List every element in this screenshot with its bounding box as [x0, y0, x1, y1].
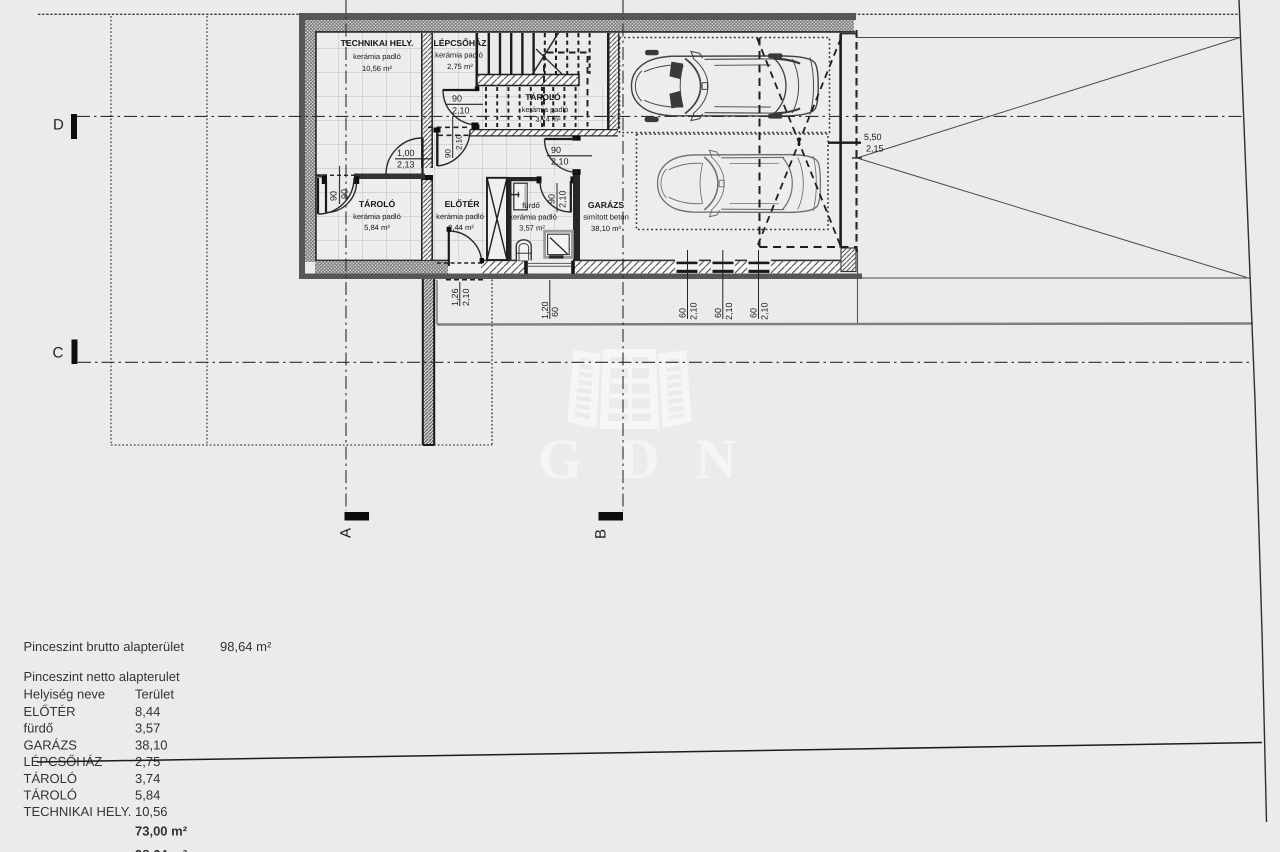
- svg-text:3,57: 3,57: [135, 721, 160, 736]
- svg-text:Terület: Terület: [135, 687, 174, 702]
- svg-text:fürdő: fürdő: [522, 201, 540, 210]
- svg-text:98,64 m²: 98,64 m²: [135, 847, 188, 852]
- svg-text:2,75: 2,75: [135, 754, 160, 769]
- svg-text:5,84: 5,84: [135, 788, 160, 803]
- svg-text:GARÁZS: GARÁZS: [588, 200, 625, 210]
- svg-text:73,00 m²: 73,00 m²: [135, 824, 188, 839]
- svg-text:90: 90: [329, 191, 339, 201]
- svg-text:kerámia padló: kerámia padló: [509, 213, 557, 222]
- svg-text:8,44 m²: 8,44 m²: [448, 223, 474, 232]
- svg-text:D: D: [53, 117, 64, 134]
- svg-text:10,56 m²: 10,56 m²: [362, 64, 392, 73]
- svg-text:fürdő: fürdő: [24, 721, 54, 736]
- svg-text:98,64 m²: 98,64 m²: [220, 639, 272, 654]
- svg-text:60: 60: [749, 308, 759, 318]
- svg-text:2,10: 2,10: [558, 190, 568, 208]
- svg-text:90: 90: [444, 149, 453, 158]
- svg-text:B: B: [593, 529, 610, 539]
- svg-text:38,10 m²: 38,10 m²: [591, 224, 621, 233]
- svg-text:2,75 m²: 2,75 m²: [447, 62, 473, 71]
- svg-text:90: 90: [452, 94, 462, 104]
- svg-text:ELŐTÉR: ELŐTÉR: [445, 199, 481, 209]
- svg-text:1,20: 1,20: [540, 301, 550, 319]
- svg-text:TÁROLÓ: TÁROLÓ: [525, 92, 561, 102]
- svg-text:2,10: 2,10: [689, 302, 699, 320]
- svg-text:5,84 m²: 5,84 m²: [364, 223, 390, 232]
- svg-text:ELŐTÉR: ELŐTÉR: [24, 704, 76, 719]
- svg-text:Helyiség neve: Helyiség neve: [24, 687, 106, 702]
- svg-text:1,00: 1,00: [397, 148, 415, 158]
- svg-text:GDN: GDN: [538, 428, 773, 491]
- svg-text:2,10: 2,10: [452, 106, 470, 116]
- svg-text:8,44: 8,44: [135, 704, 160, 719]
- svg-text:2,10: 2,10: [461, 288, 471, 306]
- svg-text:2,10: 2,10: [760, 302, 770, 320]
- svg-text:2,10: 2,10: [551, 157, 569, 167]
- svg-text:3,57 m²: 3,57 m²: [519, 224, 545, 233]
- svg-text:simított beton: simított beton: [583, 213, 629, 222]
- svg-text:90: 90: [340, 189, 350, 199]
- svg-text:C: C: [53, 345, 64, 362]
- svg-text:kerámia padló: kerámia padló: [435, 51, 483, 60]
- svg-text:TÁROLÓ: TÁROLÓ: [359, 199, 396, 209]
- svg-text:TECHNIKAI HELY.: TECHNIKAI HELY.: [24, 804, 132, 819]
- svg-text:TECHNIKAI HELY.: TECHNIKAI HELY.: [341, 38, 414, 48]
- svg-text:90: 90: [547, 194, 557, 204]
- svg-text:GARÁZS: GARÁZS: [24, 737, 78, 752]
- svg-text:2,13: 2,13: [397, 160, 415, 170]
- svg-text:60: 60: [550, 307, 560, 317]
- svg-text:60: 60: [678, 308, 688, 318]
- svg-text:Pinceszint brutto alapterület: Pinceszint brutto alapterület: [24, 639, 185, 654]
- svg-text:kerámia padló: kerámia padló: [436, 212, 484, 221]
- svg-text:60: 60: [713, 308, 723, 318]
- svg-text:TÁROLÓ: TÁROLÓ: [24, 788, 77, 803]
- svg-text:1,26: 1,26: [450, 288, 460, 306]
- svg-text:A: A: [338, 528, 355, 538]
- svg-text:kerámia padló: kerámia padló: [353, 52, 401, 61]
- svg-text:3,74: 3,74: [135, 771, 160, 786]
- svg-text:90: 90: [551, 145, 561, 155]
- svg-text:kerámia padló: kerámia padló: [353, 212, 401, 221]
- svg-text:5,50: 5,50: [864, 132, 882, 142]
- svg-text:TÁROLÓ: TÁROLÓ: [24, 771, 77, 786]
- svg-text:2,10: 2,10: [724, 302, 734, 320]
- svg-text:10,56: 10,56: [135, 804, 168, 819]
- svg-text:kerámia padló: kerámia padló: [522, 105, 568, 114]
- svg-text:2,15: 2,15: [866, 144, 884, 154]
- svg-text:38,10: 38,10: [135, 737, 168, 752]
- svg-text:2,10: 2,10: [455, 134, 464, 150]
- svg-text:Pinceszint netto alapterulet: Pinceszint netto alapterulet: [24, 669, 180, 684]
- svg-text:LÉPCSŐHÁZ: LÉPCSŐHÁZ: [434, 38, 487, 48]
